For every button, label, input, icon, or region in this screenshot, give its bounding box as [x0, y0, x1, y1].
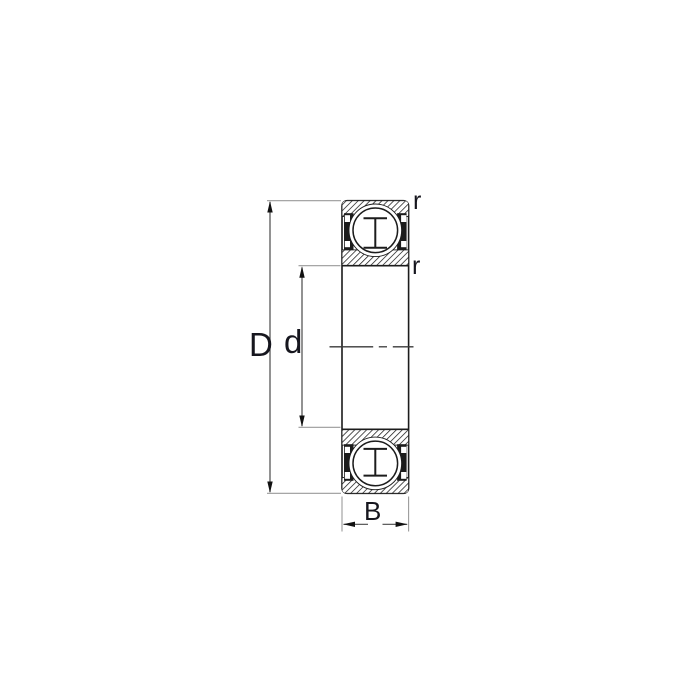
arrowhead-B-left: [343, 522, 355, 527]
radius-outer-label: r: [413, 189, 421, 214]
bearing-drawing: D d B r r: [0, 0, 700, 700]
arrowhead-D-bottom: [267, 482, 272, 494]
arrowhead-B-right: [396, 522, 408, 527]
bore-diameter-label: d: [284, 325, 302, 358]
arrowhead-d-top: [299, 266, 304, 278]
bearing-cross-section-bottom: [342, 429, 409, 493]
bearing-drawing-geometry: [0, 0, 700, 700]
width-label: B: [364, 498, 381, 524]
arrowhead-d-bottom: [299, 416, 304, 428]
outer-diameter-label: D: [249, 328, 273, 361]
radius-inner-label: r: [412, 254, 420, 279]
bearing-cross-section-top: [342, 201, 409, 266]
arrowhead-D-top: [267, 201, 272, 213]
